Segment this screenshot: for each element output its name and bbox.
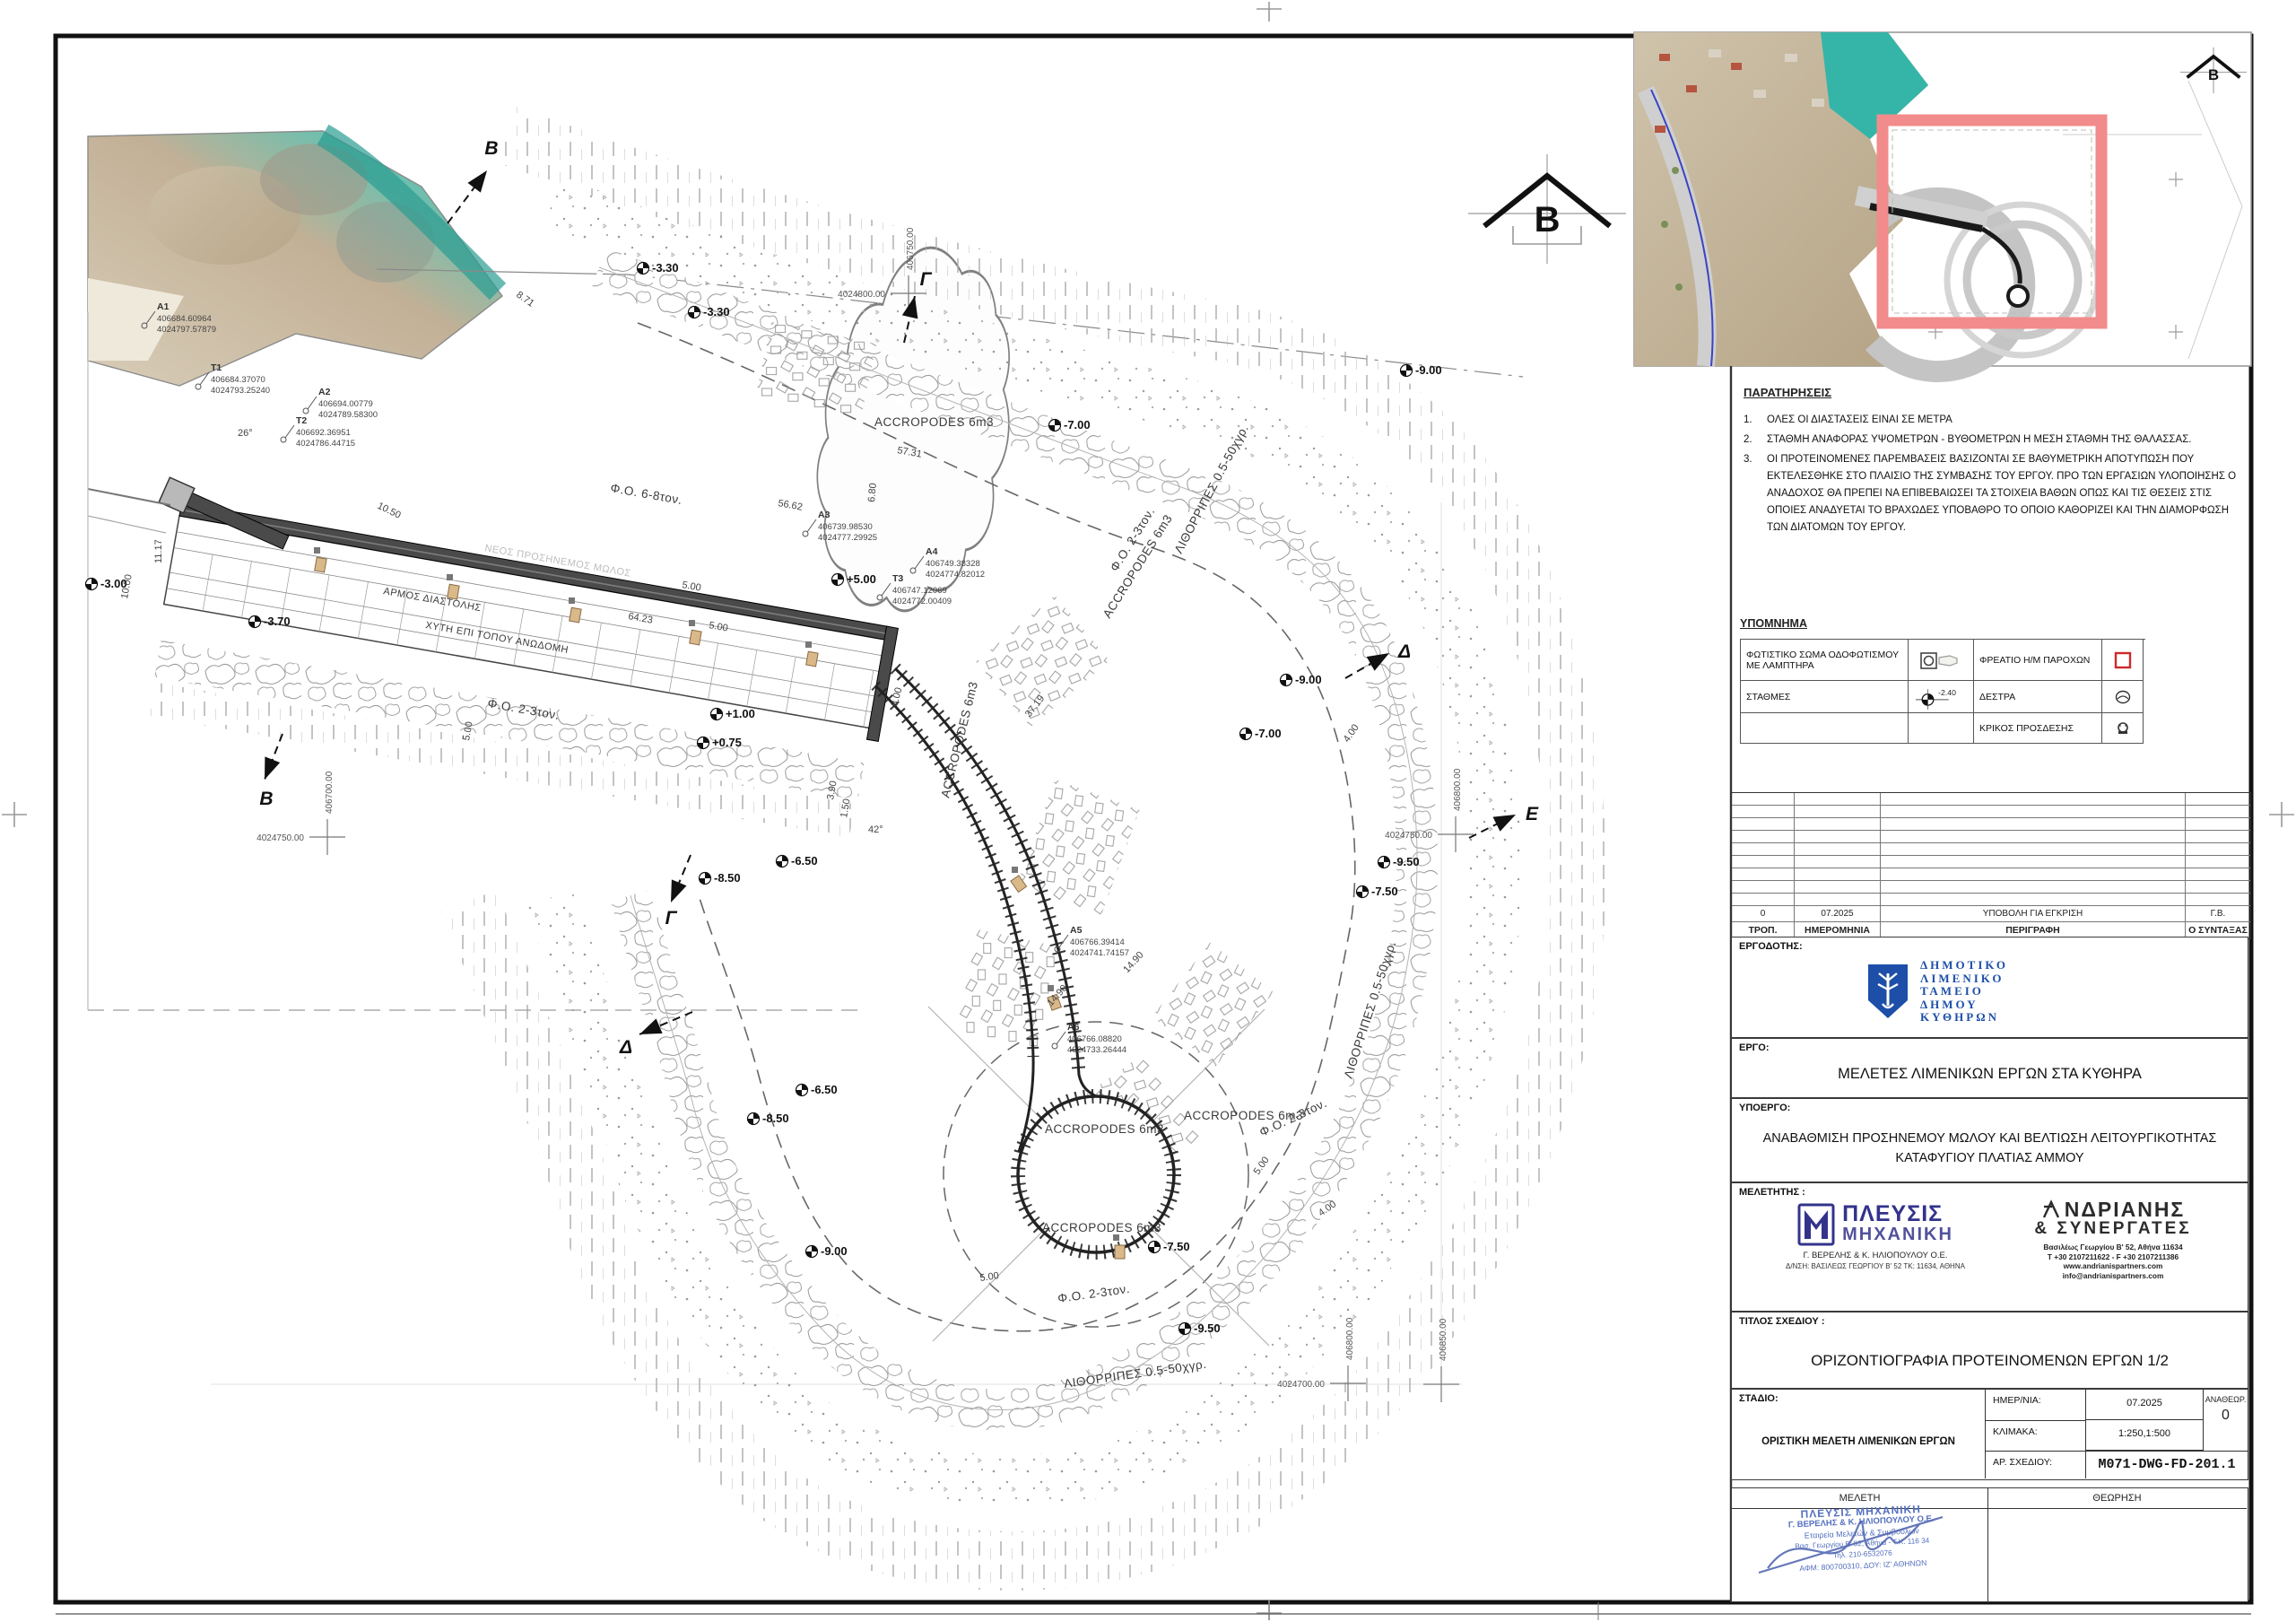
depth-symbol [1401, 371, 1407, 377]
depth-symbol [1281, 680, 1287, 686]
stage-box: ΣΤΑΔΙΟ: ΟΡΙΣΤΙΚΗ ΜΕΛΕΤΗ ΛΙΜΕΝΙΚΩΝ ΕΡΓΩΝ … [1731, 1389, 2248, 1480]
legend-title: ΥΠΟΜΝΗΜΑ [1740, 617, 2145, 630]
legend-label: ΦΩΤΙΣΤΙΚΟ ΣΩΜΑ ΟΔΟΦΩΤΙΣΜΟΥ ΜΕ ΛΑΜΠΤΗΡΑ [1741, 640, 1909, 681]
owner-shield-icon [1866, 963, 1909, 1020]
depth-symbol [1357, 892, 1363, 898]
andrianis-logo: ΝΔΡΙΑΝΗΣ & ΣΥΝΕΡΓΑΤΕΣ Βασιλέως Γεωργίου … [2001, 1199, 2225, 1280]
legend-label: ΔΕΣΤΡΑ [1974, 681, 2102, 713]
note-item: 3.ΟΙ ΠΡΟΤΕΙΝΟΜΕΝΕΣ ΠΑΡΕΜΒΑΣΕΙΣ ΒΑΣΙΖΟΝΤΑ… [1744, 451, 2239, 536]
level-symbol-icon: -2.40 [1909, 681, 1974, 713]
signature [1750, 1501, 1983, 1591]
mooring-ring-icon [2102, 713, 2144, 744]
depth-label: -7.00 [1064, 418, 1091, 432]
scale-label-cell: ΚΛΙΜΑΚΑ: [1985, 1420, 2085, 1451]
drawing-title-text: ΟΡΙΖΟΝΤΙΟΓΡΑΦΙΑ ΠΡΟΤΕΙΝΟΜΕΝΩΝ ΕΡΓΩΝ 1/2 [1732, 1352, 2248, 1370]
depth-label: -9.50 [1194, 1321, 1221, 1335]
point-id: A6 [1067, 1022, 1080, 1033]
subproject-line1: ΑΝΑΒΑΘΜΙΣΗ ΠΡΟΣΗΝΕΜΟΥ ΜΩΛΟΥ ΚΑΙ ΒΕΛΤΙΩΣΗ… [1732, 1131, 2248, 1146]
section-arrow [467, 170, 487, 193]
point-easting: 406694.00779 [318, 399, 373, 409]
depth-label: -9.00 [821, 1244, 848, 1258]
dimension-label: 56.62 [777, 498, 803, 513]
depth-symbol [700, 878, 706, 885]
aerial-photo [88, 131, 502, 386]
utility-pit-icon [2102, 640, 2144, 681]
stage-label: ΣΤΑΔΙΟ: [1739, 1393, 1779, 1404]
drawing-title-label: ΤΙΤΛΟΣ ΣΧΕΔΙΟΥ : [1739, 1316, 1824, 1327]
stage-text: ΟΡΙΣΤΙΚΗ ΜΕΛΕΤΗ ΛΙΜΕΝΙΚΩΝ ΕΡΓΩΝ [1732, 1436, 1985, 1447]
andrianis-triangle-icon [2041, 1199, 2061, 1219]
depth-label: -7.50 [1163, 1240, 1190, 1253]
legend-label: ΚΡΙΚΟΣ ΠΡΟΣΔΕΣΗΣ [1974, 713, 2102, 744]
depth-label: -6.50 [811, 1083, 838, 1096]
depth-symbol [1240, 734, 1247, 740]
depth-symbol [1149, 1247, 1155, 1253]
grid-easting-label: 406800.00 [1453, 768, 1463, 811]
depth-symbol [1406, 365, 1413, 371]
point-easting: 406739.98530 [818, 522, 873, 532]
point-easting: 406766.39414 [1070, 937, 1125, 947]
point-id: A2 [318, 387, 331, 397]
depth-symbol [1246, 728, 1252, 735]
point-easting: 406684.37070 [211, 375, 265, 385]
subproject-line2: ΚΑΤΑΦΥΓΙΟΥ ΠΛΑΤΙΑΣ ΑΜΜΟΥ [1732, 1151, 2248, 1165]
section-letter: Δ [619, 1037, 632, 1058]
plefsis-logo: ΠΛΕΥΣΙΣ ΜΗΧΑΝΙΚΗ Γ. ΒΕΡΕΛΗΣ & Κ. ΗΛΙΟΠΟΥ… [1768, 1203, 1983, 1270]
revision-row: 0 07.2025 ΥΠΟΒΟΛΗ ΓΙΑ ΕΓΚΡΙΣΗ Γ.Β. [1732, 906, 2250, 922]
scale-value-cell: 1:250,1:500 [2085, 1420, 2203, 1451]
grid-northing-label: 4024800.00 [838, 290, 885, 300]
dimension-label: 5.00 [979, 1270, 1000, 1284]
dimension-label: 4.00 [1342, 722, 1361, 744]
depth-label: +0.75 [712, 736, 742, 749]
approval-right-header: ΘΕΩΡΗΣΗ [1987, 1488, 2247, 1509]
depth-label: -6.50 [791, 854, 818, 868]
survey-point-leader [1059, 935, 1068, 947]
dimension-label: 5.00 [1252, 1155, 1272, 1176]
point-northing: 4024733.26444 [1067, 1045, 1126, 1055]
grid-northing-label: 4024750.00 [1385, 831, 1432, 841]
depth-label: -8.50 [762, 1112, 789, 1125]
depth-label: -9.00 [1295, 673, 1322, 686]
owner-label: ΕΡΓΟΔΟΤΗΣ: [1739, 941, 1803, 952]
revision-table: 0 07.2025 ΥΠΟΒΟΛΗ ΓΙΑ ΕΓΚΡΙΣΗ Γ.Β. ΤΡΟΠ.… [1731, 792, 2251, 939]
depth-symbol [1286, 675, 1292, 681]
point-id: A1 [157, 301, 170, 312]
point-northing: 4024789.58300 [318, 410, 378, 420]
note-item: 2.ΣΤΑΘΜΗ ΑΝΑΦΟΡΑΣ ΥΨΟΜΕΤΡΩΝ - ΒΥΘΟΜΕΤΡΩΝ… [1744, 432, 2239, 449]
point-northing: 4024793.25240 [211, 386, 270, 396]
grid-northing-label: 4024700.00 [1277, 1380, 1325, 1390]
drawing-title-box: ΤΙΤΛΟΣ ΣΧΕΔΙΟΥ : ΟΡΙΖΟΝΤΙΟΓΡΑΦΙΑ ΠΡΟΤΕΙΝ… [1731, 1312, 2248, 1389]
depth-symbol [782, 856, 788, 862]
point-northing: 4024772.00409 [892, 597, 952, 606]
depth-label: -7.50 [1371, 885, 1398, 898]
svg-text:-2.40: -2.40 [1938, 688, 1956, 697]
depth-symbol [832, 580, 839, 586]
point-easting: 406684.60964 [157, 314, 212, 324]
depth-symbol [753, 1113, 760, 1120]
depth-symbol [802, 1085, 808, 1091]
legend-label: ΦΡΕΑΤΙΟ Η/Μ ΠΑΡΟΧΩΝ [1974, 640, 2102, 681]
legend-label: ΣΤΑΘΜΕΣ [1741, 681, 1909, 713]
section-letter: B [259, 789, 273, 809]
plefsis-m-icon [1797, 1203, 1835, 1246]
designer-box: ΜΕΛΕΤΗΤΗΣ : ΠΛΕΥΣΙΣ ΜΗΧΑΝΙΚΗ Γ. ΒΕΡΕΛΗΣ … [1731, 1182, 2248, 1312]
depth-symbol [796, 1090, 803, 1096]
causeway-crest [875, 668, 1096, 1152]
depth-symbol [705, 873, 711, 879]
grid-easting-label: 406800.00 [1345, 1317, 1355, 1360]
north-arrow-label: B [1535, 200, 1561, 240]
depth-symbol [748, 1119, 754, 1125]
survey-point-leader [285, 425, 294, 438]
designer-label: ΜΕΛΕΤΗΤΗΣ : [1739, 1187, 1805, 1198]
subproject-label: ΥΠΟΕΡΓΟ: [1739, 1103, 1790, 1113]
dimension-label: 26° [238, 428, 253, 439]
point-northing: 4024774.82012 [926, 570, 985, 580]
point-northing: 4024786.44715 [296, 439, 355, 449]
north-arrow-icon: B [1468, 154, 1626, 264]
material-label: ACCROPODES 6m3 [938, 680, 980, 799]
point-id: T1 [211, 362, 222, 373]
point-id: A5 [1070, 925, 1083, 936]
point-id: T3 [892, 573, 903, 584]
streetlight-icon [1909, 640, 1974, 681]
point-easting: 406749.38328 [926, 559, 980, 569]
point-id: T2 [296, 415, 307, 426]
section-letter: Δ [1397, 641, 1411, 662]
point-easting: 406747.12069 [892, 586, 947, 596]
dimension-label: 6.80 [866, 483, 879, 502]
depth-symbol [838, 574, 844, 580]
depth-symbol [91, 579, 98, 585]
depth-symbol [777, 861, 783, 868]
legend-empty-cell [1909, 713, 1974, 744]
project-box: ΕΡΓΟ: ΜΕΛΕΤΕΣ ΛΙΜΕΝΙΚΩΝ ΕΡΓΩΝ ΣΤΑ ΚΥΘΗΡΑ [1731, 1038, 2248, 1098]
revision-cell: ΑΝΑΘΕΩΡ. 0 [2203, 1390, 2248, 1451]
legend-label [1741, 713, 1909, 744]
owner-logo: ΔΗΜΟΤΙΚΟ ΛΙΜΕΝΙΚΟ ΤΑΜΕΙΟ ΔΗΜΟΥ ΚΥΘΗΡΩΝ [1866, 959, 2008, 1025]
survey-point-leader [308, 397, 317, 409]
depth-symbol [806, 1251, 813, 1258]
section-letter: Γ [665, 908, 678, 929]
depth-symbol [249, 622, 256, 628]
grid-easting-label: 406850.00 [1439, 1318, 1448, 1361]
title-block-column: ΠΑΡΑΤΗΡΗΣΕΙΣ 1.ΟΛΕΣ ΟΙ ΔΙΑΣΤΑΣΕΙΣ ΕΙΝΑΙ … [1731, 36, 2251, 1602]
depth-label: +1.00 [726, 707, 755, 720]
depth-symbol [812, 1246, 818, 1252]
number-value-cell: M071-DWG-FD-201.1 [2085, 1451, 2248, 1478]
point-easting: 406766.08820 [1067, 1034, 1122, 1044]
section-arrow [671, 879, 687, 903]
depth-symbol [1384, 857, 1390, 863]
depth-label: -8.50 [714, 871, 741, 885]
material-label: ACCROPODES 6m3 [1042, 1221, 1161, 1234]
dimension-label: 8.00 [889, 686, 904, 708]
approval-box: ΜΕΛΕΤΗ ΘΕΩΡΗΣΗ ΠΛΕΥΣΙΣ ΜΗΧΑΝΙΚΗ Γ. ΒΕΡΕΛ… [1731, 1487, 2248, 1602]
depth-label: -3.70 [264, 615, 291, 628]
grid-easting-label: 406750.00 [906, 227, 916, 270]
material-label: ACCROPODES 6m3 [874, 415, 994, 429]
section-letter: Ε [1526, 804, 1539, 824]
legend-block: ΥΠΟΜΝΗΜΑ ΦΩΤΙΣΤΙΚΟ ΣΩΜΑ ΟΔΟΦΩΤΙΣΜΟΥ ΜΕ Λ… [1740, 617, 2145, 744]
point-northing: 4024777.29925 [818, 533, 877, 543]
bollard-icon [2102, 681, 2144, 713]
depth-label: -7.00 [1255, 727, 1282, 740]
date-label-cell: ΗΜΕΡ/ΝΙΑ: [1985, 1390, 2085, 1420]
subproject-box: ΥΠΟΕΡΓΟ: ΑΝΑΒΑΘΜΙΣΗ ΠΡΟΣΗΝΕΜΟΥ ΜΩΛΟΥ ΚΑΙ… [1731, 1098, 2248, 1182]
depth-symbol [717, 709, 723, 715]
section-letter: B [484, 138, 498, 159]
depth-label: -9.50 [1393, 855, 1420, 868]
depth-symbol [1362, 886, 1369, 893]
depth-label: +5.00 [847, 572, 876, 586]
owner-box: ΕΡΓΟΔΟΤΗΣ: ΔΗΜΟΤΙΚΟ ΛΙΜΕΝΙΚΟ ΤΑΜΕΙΟ ΔΗΜΟ… [1731, 937, 2248, 1038]
date-value-cell: 07.2025 [2085, 1390, 2203, 1420]
material-label: Φ.Ο. 2-3τον. [1057, 1282, 1130, 1305]
depth-symbol [86, 584, 92, 590]
survey-point-leader [1057, 1032, 1065, 1044]
depth-symbol [1378, 862, 1385, 868]
grid-northing-label: 4024750.00 [257, 833, 304, 843]
depth-symbol [711, 714, 717, 720]
depth-label: -3.30 [703, 305, 730, 318]
material-label: ACCROPODES 6m3 [1045, 1122, 1164, 1136]
material-label: Φ.Ο. 6-8τον. [609, 481, 683, 507]
depth-symbol [1055, 420, 1061, 426]
point-id: A3 [818, 510, 831, 520]
notes-block: ΠΑΡΑΤΗΡΗΣΕΙΣ 1.ΟΛΕΣ ΟΙ ΔΙΑΣΤΑΣΕΙΣ ΕΙΝΑΙ … [1744, 386, 2239, 539]
section-arrow [265, 756, 280, 780]
depth-symbol [1154, 1242, 1161, 1248]
dimension-label: 3.90 [825, 780, 839, 800]
project-title: ΜΕΛΕΤΕΣ ΛΙΜΕΝΙΚΩΝ ΕΡΓΩΝ ΣΤΑ ΚΥΘΗΡΑ [1732, 1066, 2248, 1083]
point-easting: 406692.36951 [296, 428, 351, 438]
project-label: ΕΡΓΟ: [1739, 1042, 1770, 1053]
note-item: 1.ΟΛΕΣ ΟΙ ΔΙΑΣΤΑΣΕΙΣ ΕΙΝΑΙ ΣΕ ΜΕΤΡΑ [1744, 412, 2239, 429]
survey-point-leader [807, 519, 816, 532]
point-id: A4 [926, 546, 938, 557]
grid-easting-label: 406700.00 [325, 771, 335, 814]
dimension-label: 10.50 [376, 501, 403, 521]
point-northing: 4024741.74157 [1070, 948, 1129, 958]
depth-label: -3.30 [652, 261, 679, 275]
drawing-sheet: B ACCROPODES 6m3ACCROPODES 6m3ACCROPODES… [0, 0, 2296, 1622]
dimension-label: 42° [868, 824, 883, 835]
section-letter: Γ [920, 269, 933, 290]
point-northing: 4024797.57879 [157, 325, 216, 335]
notes-title: ΠΑΡΑΤΗΡΗΣΕΙΣ [1744, 386, 2239, 399]
dimension-label: 8.71 [514, 290, 535, 310]
dimension-label: 11.17 [153, 539, 164, 563]
number-label-cell: ΑΡ. ΣΧΕΔΙΟΥ: [1985, 1451, 2085, 1478]
depth-label: -9.00 [1415, 363, 1442, 377]
